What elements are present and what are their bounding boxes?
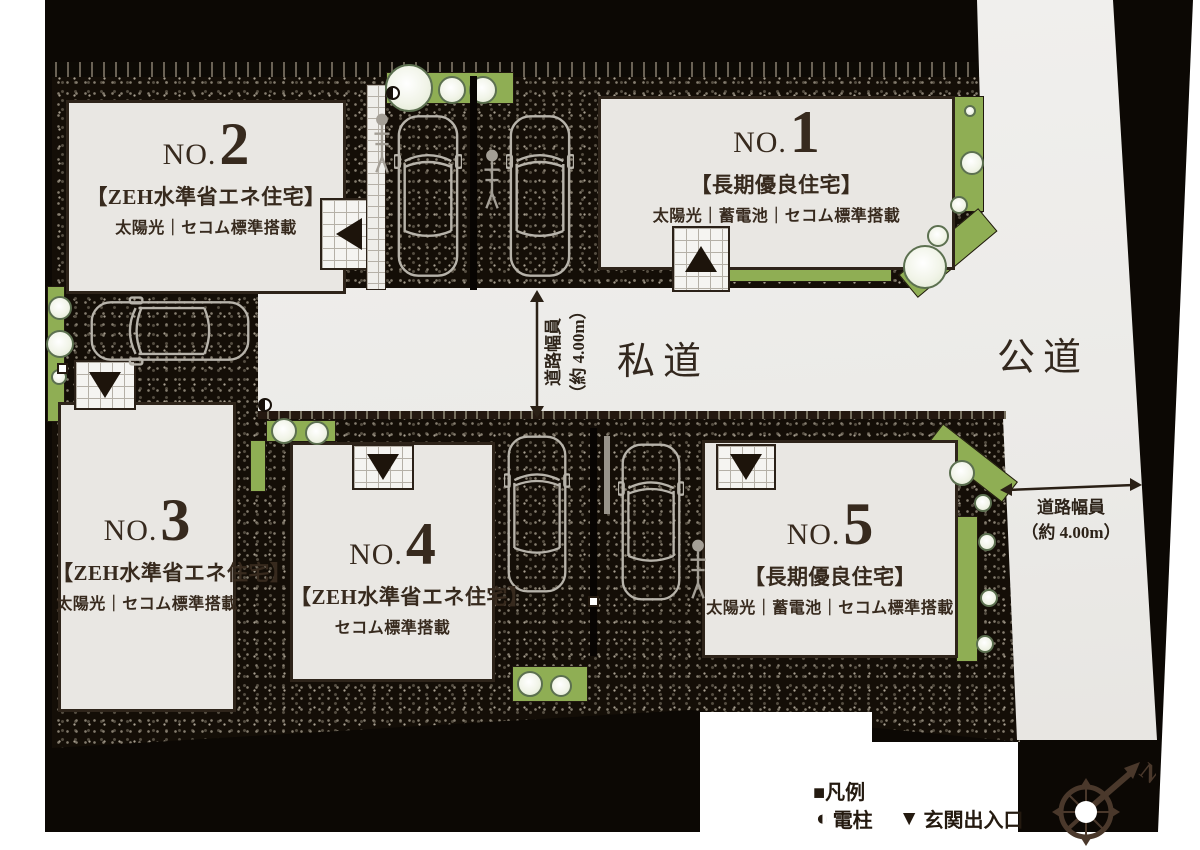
tree-icon [48, 296, 72, 320]
meter-stand-icon [372, 112, 392, 178]
entrance-marker-icon [685, 246, 717, 272]
road-width-note-private: 道路幅員 （約 4.00m） [512, 295, 622, 409]
tree-icon [964, 105, 976, 117]
road-width-note-public: 道路幅員 （約 4.00m） [1001, 496, 1141, 545]
tree-icon [949, 460, 975, 486]
lot-features: 太陽光｜セコム標準搭載 [52, 590, 242, 614]
utility-pole-icon [258, 398, 272, 412]
lot-number: NO. 1 [598, 102, 955, 162]
lot-type: 【ZEH水準省エネ住宅】 [66, 181, 346, 211]
entrance-porch-no4 [352, 444, 414, 490]
lot-number-prefix: NO. [163, 140, 217, 170]
tree-icon [438, 76, 466, 104]
greenery-bed [250, 440, 266, 492]
tree-icon [550, 675, 572, 697]
lot-number-value: 2 [219, 114, 249, 174]
car-icon [504, 430, 570, 598]
lot-features: 太陽光｜蓄電池｜セコム標準搭載 [598, 202, 955, 226]
greenery-bed [956, 516, 978, 662]
tree-icon [974, 494, 992, 512]
lot-number: NO. 2 [66, 114, 346, 174]
entrance-porch-no5 [716, 444, 776, 490]
lot-features: セコム標準搭載 [290, 614, 495, 638]
entrance-porch-no1 [672, 226, 730, 292]
lot-number-prefix: NO. [104, 516, 158, 546]
road-width-line1: 道路幅員 [1001, 496, 1141, 521]
lot-number: NO. 4 [290, 514, 495, 574]
lot-number-value: 1 [790, 102, 820, 162]
lot-type: 【長期優良住宅】 [702, 561, 958, 591]
tree-icon [978, 533, 996, 551]
entrance-porch-no3 [74, 360, 136, 410]
tree-icon [517, 671, 543, 697]
parking-divider-wall [590, 428, 597, 656]
entrance-marker-icon [367, 454, 399, 480]
entrance-symbol: ▼ [899, 806, 920, 831]
legend-item-label: 電柱 [833, 804, 873, 833]
utility-pole-icon [386, 86, 400, 100]
lot-number-value: 4 [406, 514, 436, 574]
legend-items: ◐ 電柱 ▼ 玄関出入口 [816, 804, 1023, 833]
meter-stand-icon [482, 148, 502, 214]
lot-number-value: 3 [160, 490, 190, 550]
lot-label-no3: NO. 3 【ZEH水準省エネ住宅】 太陽光｜セコム標準搭載 [52, 490, 242, 614]
tree-icon [980, 589, 998, 607]
lot-type: 【ZEH水準省エネ住宅】 [290, 581, 495, 611]
lot-number-prefix: NO. [349, 540, 403, 570]
tree-icon [46, 330, 74, 358]
lot-label-no1: NO. 1 【長期優良住宅】 太陽光｜蓄電池｜セコム標準搭載 [598, 102, 955, 226]
compass-icon: N [1036, 752, 1156, 850]
legend-item-pole: ◐ 電柱 [816, 804, 873, 833]
lot-number-prefix: NO. [787, 520, 841, 550]
lot-type: 【長期優良住宅】 [598, 169, 955, 199]
public-road-label: 公道 [978, 326, 1108, 381]
legend-title: ■凡例 [813, 776, 865, 805]
lot-label-no5: NO. 5 【長期優良住宅】 太陽光｜蓄電池｜セコム標準搭載 [702, 494, 958, 618]
road-width-line1: 道路幅員 [542, 318, 567, 386]
tree-icon [960, 151, 984, 175]
utility-meter-icon [57, 363, 68, 374]
lot-number-prefix: NO. [733, 128, 787, 158]
lot-label-no4: NO. 4 【ZEH水準省エネ住宅】 セコム標準搭載 [290, 514, 495, 638]
car-icon [86, 296, 254, 366]
lot-label-no2: NO. 2 【ZEH水準省エネ住宅】 太陽光｜セコム標準搭載 [66, 114, 346, 238]
lot-features: 太陽光｜セコム標準搭載 [66, 214, 346, 238]
road-width-line2: （約 4.00m） [567, 302, 592, 401]
road-curb [258, 411, 1006, 419]
car-icon [506, 110, 574, 282]
car-icon [394, 110, 462, 282]
tree-icon [271, 418, 297, 444]
utility-meter-icon [588, 596, 599, 607]
lot-number: NO. 3 [52, 490, 242, 550]
lot-number-value: 5 [843, 494, 873, 554]
entrance-marker-icon [730, 454, 762, 480]
parking-divider-wall [470, 76, 477, 290]
car-icon [618, 438, 684, 606]
tree-icon [305, 421, 329, 445]
tree-icon [976, 635, 994, 653]
entrance-marker-icon [89, 372, 121, 398]
sidewalk-strip [52, 62, 988, 77]
dimension-arrow-horizontal [1000, 478, 1142, 498]
parking-divider-wall [604, 436, 610, 514]
lot-type: 【ZEH水準省エネ住宅】 [52, 557, 242, 587]
road-width-line2: （約 4.00m） [1001, 521, 1141, 546]
tree-icon [903, 245, 947, 289]
utility-pole-symbol: ◐ [816, 806, 829, 831]
lot-features: 太陽光｜蓄電池｜セコム標準搭載 [702, 594, 958, 618]
tree-icon [927, 225, 949, 247]
legend-item-entrance: ▼ 玄関出入口 [899, 804, 1024, 833]
legend-item-label: 玄関出入口 [923, 804, 1023, 833]
lot-number: NO. 5 [702, 494, 958, 554]
site-plan-page: NO. 1 【長期優良住宅】 太陽光｜蓄電池｜セコム標準搭載 NO. 2 【ZE… [0, 0, 1200, 850]
